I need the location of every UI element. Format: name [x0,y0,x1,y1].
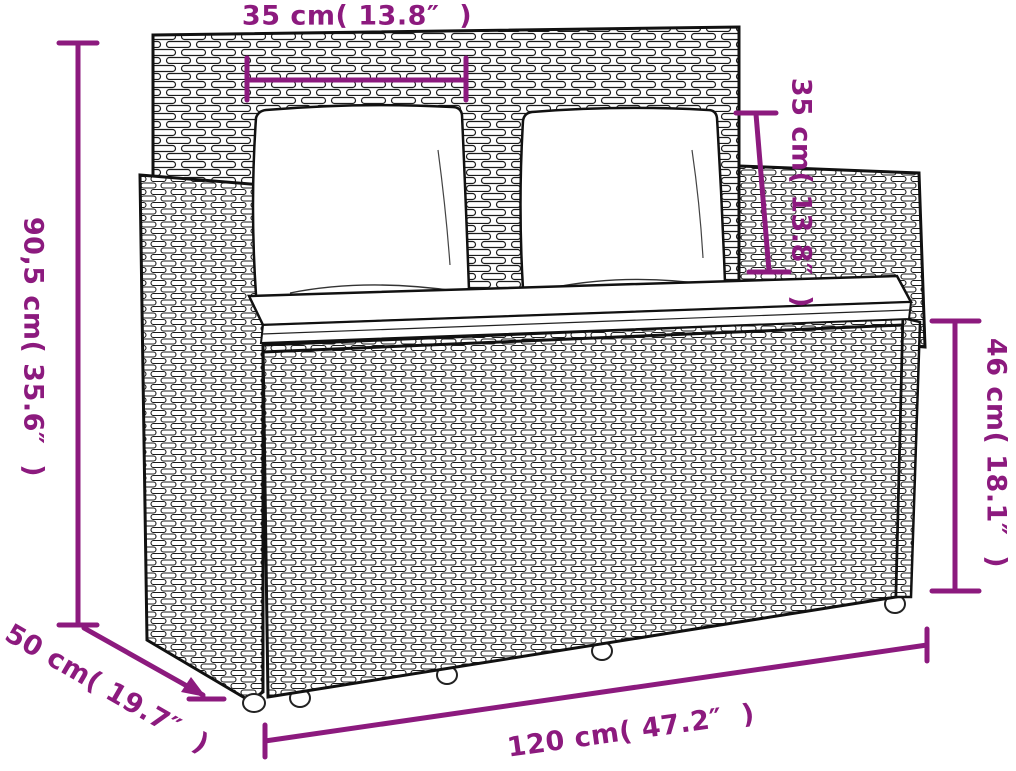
foot [243,694,265,712]
dimension-label-backrest-35cm: 35 cm( 13.8″ ) [788,78,815,308]
dimension-label-seat-46cm: 46 cm( 18.1″ ) [983,338,1010,568]
dimension-label-left-90-5cm: 90,5 cm( 35.6″ ) [20,217,47,477]
bench-line-drawing [0,0,1016,771]
right-back-pillow [521,108,726,299]
diagram-canvas: 35 cm( 13.8″ ) 90,5 cm( 35.6″ ) 35 cm( 1… [0,0,1016,771]
depth-arrowhead [181,677,206,697]
left-back-pillow [253,105,469,305]
seat-box-front [263,318,903,697]
dimension-label-top-35cm: 35 cm( 13.8″ ) [242,3,472,30]
dimension-seat-46cm [932,321,979,591]
left-armrest-panel [140,175,263,701]
dimension-left-90-5cm [59,43,97,625]
